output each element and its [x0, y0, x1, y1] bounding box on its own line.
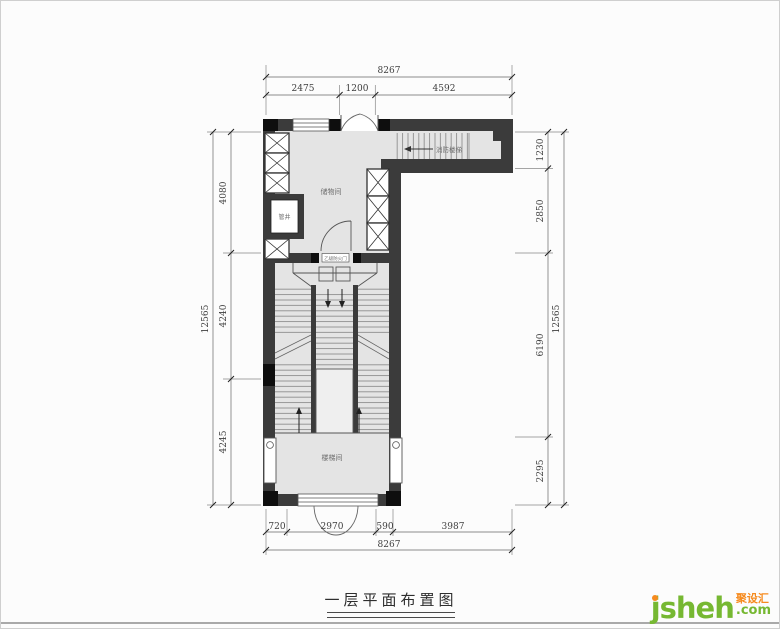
site-watermark: jsheh 聚设汇 .com	[651, 593, 771, 623]
dim-right-seg4: 2295	[536, 459, 546, 482]
dim-left-overall: 12565	[201, 304, 211, 333]
floor-plan-svg: 消防楼梯 管井 储物间 乙级防火门	[1, 1, 779, 628]
dim-bottom-seg3: 590	[376, 522, 393, 532]
dim-right-seg2: 2850	[536, 199, 546, 222]
dim-top-overall: 8267	[378, 66, 401, 76]
dim-bottom-seg1: 720	[268, 522, 285, 532]
dim-top-seg3: 4592	[433, 84, 456, 94]
logo-dot-icon	[652, 595, 658, 601]
title-underline	[327, 612, 455, 618]
brand-suffix: .com	[736, 605, 771, 617]
stair-hall-label: 楼梯间	[322, 453, 343, 462]
drawing-sheet: 消防楼梯 管井 储物间 乙级防火门	[0, 0, 780, 629]
dim-bottom-overall: 8267	[378, 540, 401, 550]
top-dimensions: 8267 2475 1200 4592	[263, 65, 515, 115]
dim-left-seg2: 4240	[219, 304, 229, 327]
dim-right-seg1: 1230	[536, 138, 546, 161]
top-double-door	[341, 114, 378, 131]
title-block: 一层平面布置图	[307, 589, 475, 618]
pipe-shaft-room: 管井	[264, 194, 304, 239]
pipe-shaft-label: 管井	[278, 213, 290, 221]
dim-left-seg1: 4080	[219, 181, 229, 204]
brand-logo-text: jsheh	[651, 593, 734, 623]
shaft-cells-right	[367, 169, 389, 250]
storage-room-label: 储物间	[321, 187, 342, 196]
left-dimensions: 4080 4240 4245 12565	[201, 129, 261, 508]
fire-stairs-label: 消防楼梯	[436, 145, 463, 154]
entry-door-tag: 乙级防火门	[324, 255, 347, 262]
bottom-dimensions: 720 2970 590 3987 8267	[263, 509, 515, 555]
dim-right-seg3: 6190	[536, 333, 546, 356]
dim-left-seg3: 4245	[219, 430, 229, 453]
right-dimensions: 1230 2850 6190 2295 12565	[515, 129, 569, 508]
drawing-title: 一层平面布置图	[307, 589, 475, 610]
dim-top-seg1: 2475	[292, 84, 315, 94]
window-tag-icon	[267, 442, 274, 449]
dim-bottom-seg4: 3987	[442, 522, 465, 532]
dim-right-overall: 12565	[552, 304, 562, 333]
window-tag-icon	[393, 442, 400, 449]
top-window	[293, 119, 329, 131]
dim-bottom-seg2: 2970	[321, 522, 344, 532]
dim-top-seg2: 1200	[346, 84, 369, 94]
fire-stair-corridor: 消防楼梯	[393, 133, 469, 159]
